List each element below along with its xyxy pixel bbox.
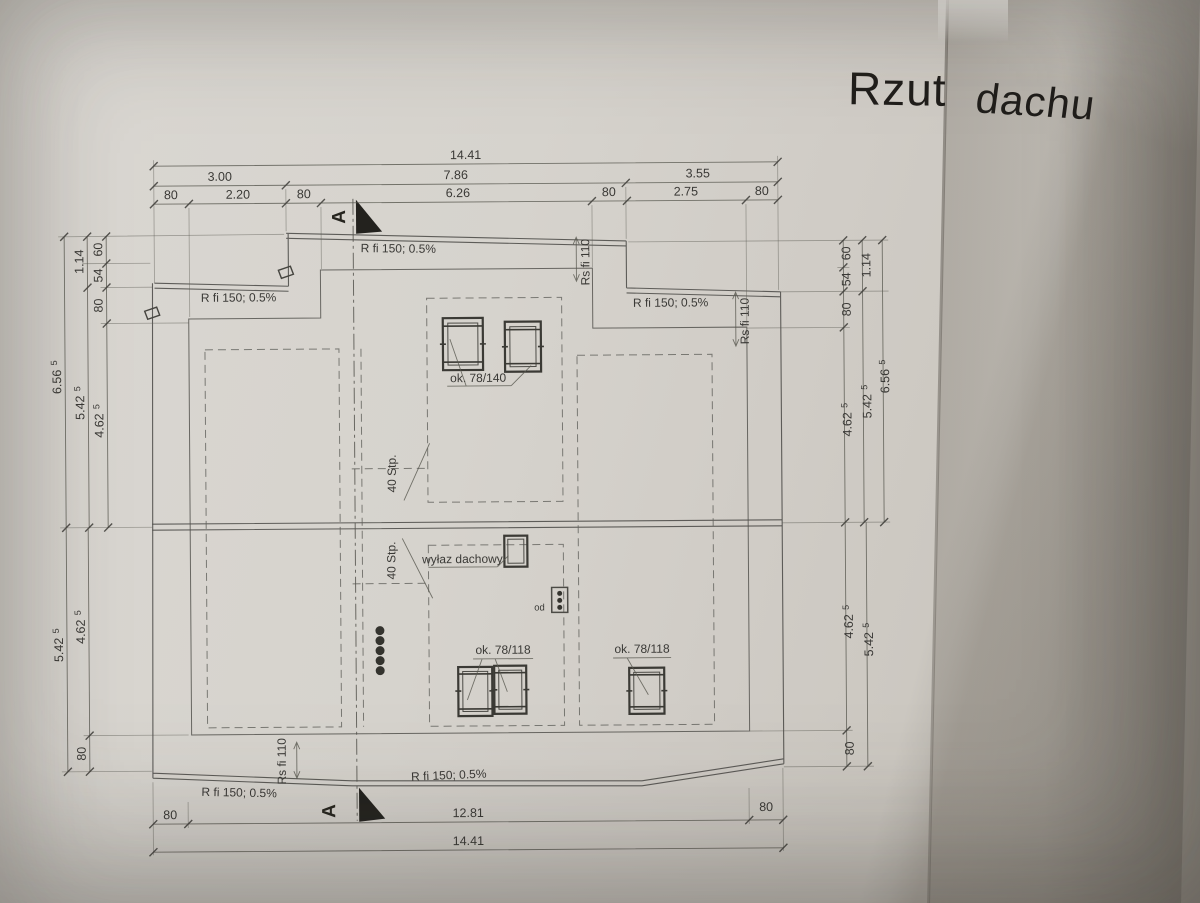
dim-sub: 80 [755,184,769,198]
left-lower-dimension-chain: 4.62 5 5.42 5 80 [50,527,189,776]
gutter-label-bottom-left: R fi 150; 0.5% [201,785,277,800]
dim-seg: 54 [839,272,853,286]
downpipe-label: Rs fi 110 [275,738,289,785]
downpipe-marker-right: Rs fi 110 [733,292,752,346]
roof-window [491,666,529,714]
section-cut-line [353,199,357,821]
dim-mid: 5.42 [860,394,874,418]
dim-outer: 6.56 [878,369,892,393]
slope-label: 40 Stp. [385,454,399,492]
dim-sub: 6.26 [446,186,470,200]
dim-outer: 5.42 [862,632,876,656]
dim-outer-sup: 5 [877,360,887,365]
interior-dashed-lines [205,296,715,728]
dim-seg: 60 [839,246,853,260]
roof-plan-drawing: A A R fi 150; 0.5% R fi 150; 0.5% R fi 1… [0,0,1200,903]
dim-bottom-left-eave: 80 [163,808,177,822]
dim-total-top: 14.41 [450,148,481,162]
gutter-label-top-left: R fi 150; 0.5% [201,290,277,305]
dim-bottom-inner: 12.81 [452,806,483,820]
roof-window-bottom-label: ok. 78/118 [614,642,670,656]
dim-seg: 60 [91,243,105,257]
dim-sub: 80 [164,188,178,202]
ridge-line [152,520,782,530]
roof-window [455,667,495,716]
downpipe-marker-top: Rs fi 110 [573,237,592,285]
dim-sub: 2.20 [226,188,250,202]
downpipe-label: Rs fi 110 [578,239,592,286]
dim-inner-sup: 5 [841,605,851,610]
slope-callout-lower: 40 Stp. [384,538,432,598]
dim-inner-sup: 5 [839,403,849,408]
dim-inner: 4.62 [840,412,854,436]
dim-inner: 4.62 [842,614,856,638]
dim-inner-sup: 5 [91,404,101,409]
slope-callout-upper: 40 Stp. [385,443,430,500]
dim-seg: 54 [91,269,105,283]
dim-sub: 80 [297,187,311,201]
dim-seg-left: 3.00 [208,170,232,184]
dim-outer: 5.42 [52,638,66,662]
downpipe-marker-bottom: Rs fi 110 [275,738,300,785]
roof-hatch-callout: wyłaz dachowy [421,552,508,568]
dim-inner-sup: 5 [73,610,83,615]
section-letter-top: A [329,210,350,224]
dim-mid: 5.42 [73,395,87,419]
gutter-label-top-right: R fi 150; 0.5% [633,295,709,310]
slope-label: 40 Stp. [384,541,398,579]
roof-window [440,318,486,370]
dim-outer-sup: 5 [861,623,871,628]
gutter-label-top-middle: R fi 150; 0.5% [361,241,437,256]
dim-span: 1.14 [72,249,86,273]
dim-bottom-total: 14.41 [453,834,484,848]
roof-window [502,321,544,371]
vent-label: od [534,602,545,613]
dim-span: 1.14 [859,253,873,277]
dim-eave: 80 [843,741,857,755]
downspout-icon [278,266,293,278]
roof-hatch-label: wyłaz dachowy [421,552,503,567]
section-arrow-bottom [359,788,385,822]
roof-window-top-label: ok. 78/140 [450,371,506,385]
dim-sub: 80 [602,185,616,199]
roof-hatch [504,536,527,567]
roof-window-bottom-label: ok. 78/118 [475,643,531,657]
dim-seg-right: 3.55 [686,166,710,180]
roof-window [626,668,667,714]
wall-outline [188,267,749,735]
dim-seg-mid: 7.86 [444,168,468,182]
dim-sub: 2.75 [674,184,698,198]
dim-eave: 80 [75,747,89,761]
dim-outer: 6.56 [50,370,64,394]
dim-outer-sup: 5 [49,360,59,365]
left-upper-dimension-chain: 60 54 80 1.14 4.62 5 5.42 5 6.56 5 [48,231,286,532]
dim-inner: 4.62 [74,619,88,643]
roof-steps-dots [375,626,384,675]
dim-mid-sup: 5 [72,386,82,391]
right-upper-dimension-chain: 60 54 80 1.14 4.62 5 5.42 5 6.56 5 [628,236,893,528]
right-lower-dimension-chain: 4.62 5 5.42 5 80 [748,522,877,771]
downpipe-label: Rs fi 110 [738,297,752,344]
dim-outer-sup: 5 [51,628,61,633]
section-letter-bottom: A [319,804,340,818]
dim-bottom-right-eave: 80 [759,800,773,814]
eaves-gutter-outline [149,230,784,789]
photographed-roof-plan-sheet: Rzut dachu A A R fi 150; 0.5% R fi 150; … [0,0,1200,903]
dim-mid-sup: 5 [859,385,869,390]
dim-inner: 4.62 [92,413,106,437]
vent-stack: od [534,587,568,613]
dim-seg: 80 [840,302,854,316]
dim-seg: 80 [92,299,106,313]
section-arrow-top [356,200,382,234]
